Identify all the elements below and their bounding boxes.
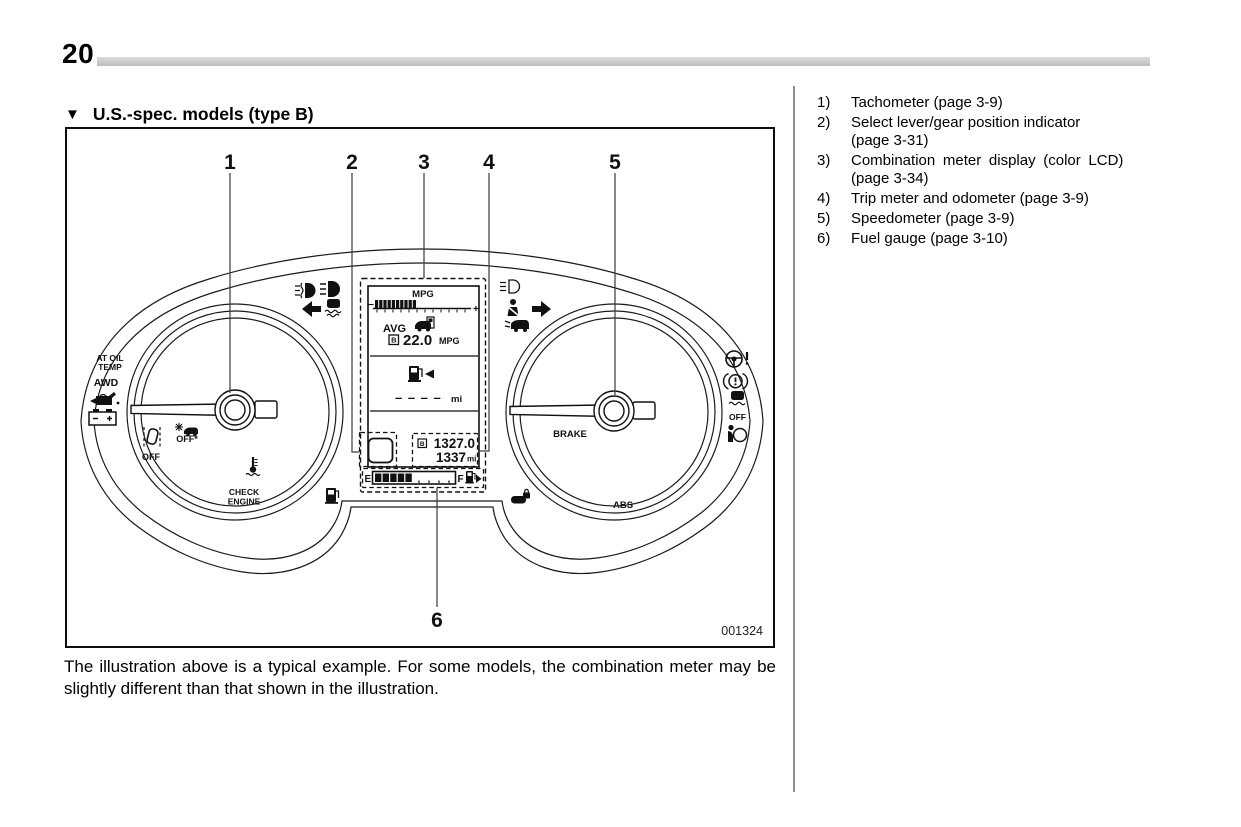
legend-item-tachometer: 1) Tachometer (page 3-9) [817, 94, 1153, 112]
fog-light-icon [295, 283, 316, 298]
lcd-avg-unit: MPG [439, 336, 460, 346]
lcd-display: MPG − + AVG B 22.0 MPG [360, 279, 486, 493]
legend-item-combination-meter: 3) Combination meter display (color LCD)… [817, 152, 1153, 188]
cluster-illustration: MPG − + AVG B 22.0 MPG [67, 129, 773, 646]
speedometer-needle [510, 391, 655, 431]
column-divider [793, 86, 795, 792]
at-oil-temp-label-2: TEMP [98, 362, 122, 372]
callout-3: 3 [418, 151, 430, 174]
security-indicator-icon [511, 489, 530, 503]
headlight-on-icon [505, 320, 529, 332]
legend-item-select-lever: 2) Select lever/gear position indicator … [817, 114, 1153, 150]
turn-left-arrow-icon [302, 301, 321, 317]
figure-code: 001324 [721, 624, 763, 638]
lcd-avg-b: B [391, 336, 397, 345]
legend-item-speedometer: 5) Speedometer (page 3-9) [817, 210, 1153, 228]
legend-item-text: Speedometer (page 3-9) [851, 210, 1153, 228]
fuel-pump-small-icon [465, 471, 475, 484]
manual-page: 20 ▼ U.S.-spec. models (type B) [0, 0, 1241, 827]
page-number: 20 [62, 38, 94, 70]
lcd-range-unit: mi [451, 394, 462, 405]
brake-warning-icon [723, 374, 747, 390]
legend-item-number: 2) [817, 114, 851, 150]
legend-item-text: Combination meter display (color LCD) [851, 152, 1153, 170]
lane-sway-off-label: OFF [142, 452, 160, 462]
legend-item-text: (page 3-34) [851, 170, 1153, 188]
gear-position-box [369, 439, 393, 463]
abs-label: ABS [613, 500, 633, 511]
odometer-b: B [420, 441, 425, 448]
high-beam-icon [320, 281, 340, 297]
legend-item-text: (page 3-31) [851, 132, 1153, 150]
check-engine-label-2: ENGINE [228, 497, 261, 507]
precollision-off-label: OFF* [176, 434, 198, 444]
fuel-empty-label: E [365, 474, 372, 485]
callout-2: 2 [346, 151, 358, 174]
lcd-avg-value: 22.0 [403, 332, 432, 349]
legend-item-trip-meter: 4) Trip meter and odometer (page 3-9) [817, 190, 1153, 208]
seatbelt-warning-icon [507, 299, 519, 316]
oil-pressure-icon [90, 392, 119, 405]
legend-item-number: 3) [817, 152, 851, 188]
fuel-full-label: F [458, 474, 464, 485]
legend-item-text: Trip meter and odometer (page 3-9) [851, 190, 1153, 208]
odometer-value: 1327.0 [434, 436, 475, 451]
callout-5: 5 [609, 151, 621, 174]
airbag-warning-icon [728, 425, 747, 442]
section-marker-icon: ▼ [65, 107, 80, 122]
legend-item-number: 6) [817, 230, 851, 248]
turn-right-arrow-icon [532, 301, 551, 317]
vdc-operation-icon [325, 299, 341, 317]
legend-item-text: Fuel gauge (page 3-10) [851, 230, 1153, 248]
lcd-bar-plus: + [473, 304, 479, 315]
trip-value: 1337 [436, 450, 466, 465]
section-title: U.S.-spec. models (type B) [93, 104, 314, 125]
brake-label: BRAKE [553, 429, 587, 440]
check-engine-label: CHECK [229, 487, 260, 497]
trip-unit: mi [467, 455, 476, 464]
callout-6: 6 [431, 609, 443, 632]
vdc-off-label: OFF [729, 412, 746, 422]
cluster-figure: MPG − + AVG B 22.0 MPG [65, 127, 775, 648]
lcd-bar-minus: − [368, 300, 374, 311]
lcd-mpg-title: MPG [412, 289, 434, 300]
battery-icon [89, 409, 116, 425]
legend-list: 1) Tachometer (page 3-9) 2) Select lever… [817, 94, 1153, 250]
legend-item-fuel-gauge: 6) Fuel gauge (page 3-10) [817, 230, 1153, 248]
legend-item-text: Tachometer (page 3-9) [851, 94, 1153, 112]
awd-label: AWD [94, 377, 119, 389]
fuel-arrow-icon [476, 475, 482, 484]
coolant-temp-icon [246, 457, 260, 476]
legend-item-number: 4) [817, 190, 851, 208]
callout-1: 1 [224, 151, 236, 174]
lcd-range-value: – – – – [395, 390, 442, 405]
legend-item-text: Select lever/gear position indicator [851, 114, 1153, 132]
fuel-bar-segments [375, 474, 412, 483]
figure-caption: The illustration above is a typical exam… [64, 656, 776, 699]
legend-item-number: 1) [817, 94, 851, 112]
header-rule [97, 57, 1150, 66]
high-beam-indicator-icon [500, 280, 520, 293]
section-heading: ▼ U.S.-spec. models (type B) [65, 104, 314, 125]
vdc-off-icon [729, 391, 745, 405]
low-fuel-icon [325, 488, 339, 504]
callout-4: 4 [483, 151, 495, 174]
tachometer-needle [131, 390, 277, 430]
legend-item-number: 5) [817, 210, 851, 228]
